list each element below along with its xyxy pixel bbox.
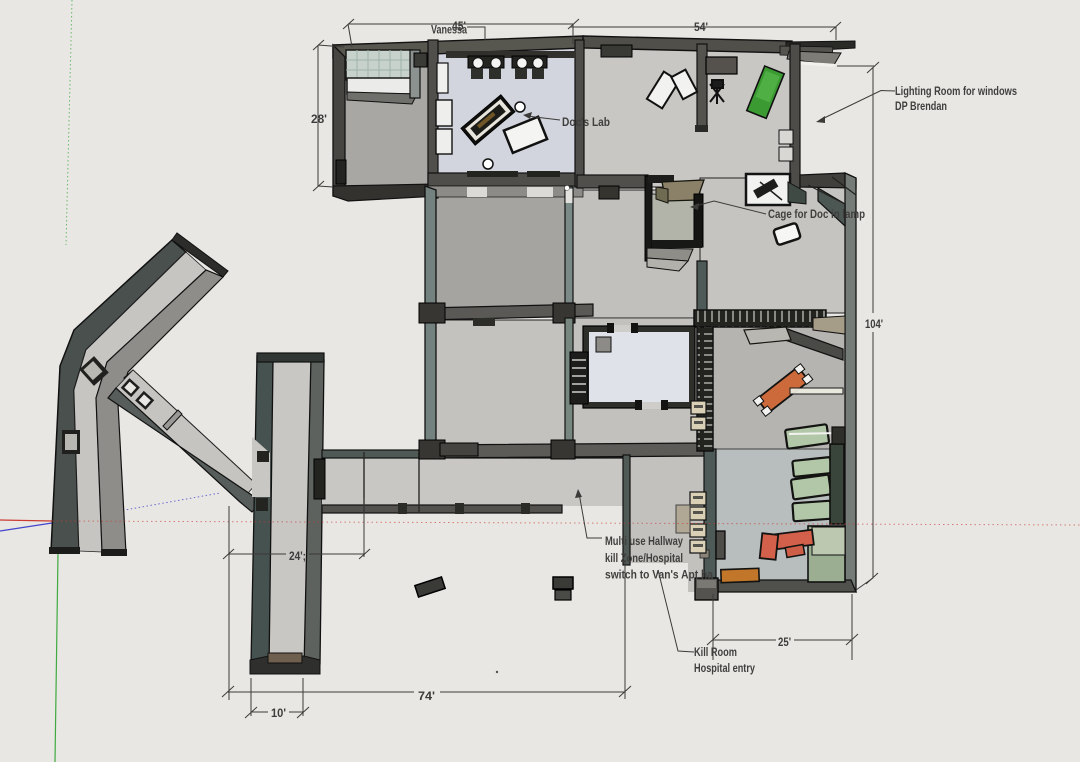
svg-text:Doc's Lab: Doc's Lab bbox=[562, 115, 610, 129]
svg-text:Kill Room: Kill Room bbox=[694, 645, 737, 659]
svg-text:74': 74' bbox=[418, 689, 435, 703]
svg-text:10': 10' bbox=[271, 706, 286, 720]
svg-text:Vanessa: Vanessa bbox=[431, 23, 467, 37]
svg-text:25': 25' bbox=[778, 635, 791, 649]
svg-text:28': 28' bbox=[311, 112, 327, 126]
svg-text:Multi use Hallway: Multi use Hallway bbox=[605, 534, 683, 548]
svg-text:Cage for Doc in lamp: Cage for Doc in lamp bbox=[768, 207, 865, 221]
svg-text:54': 54' bbox=[694, 20, 708, 34]
svg-text:DP Brendan: DP Brendan bbox=[895, 99, 947, 113]
svg-text:Lighting Room for windows: Lighting Room for windows bbox=[895, 84, 1017, 98]
svg-text:104': 104' bbox=[865, 317, 883, 331]
svg-text:kill Zone/Hospital: kill Zone/Hospital bbox=[605, 551, 683, 565]
svg-text:24';: 24'; bbox=[289, 549, 306, 563]
svg-text:Hospital entry: Hospital entry bbox=[694, 661, 755, 675]
